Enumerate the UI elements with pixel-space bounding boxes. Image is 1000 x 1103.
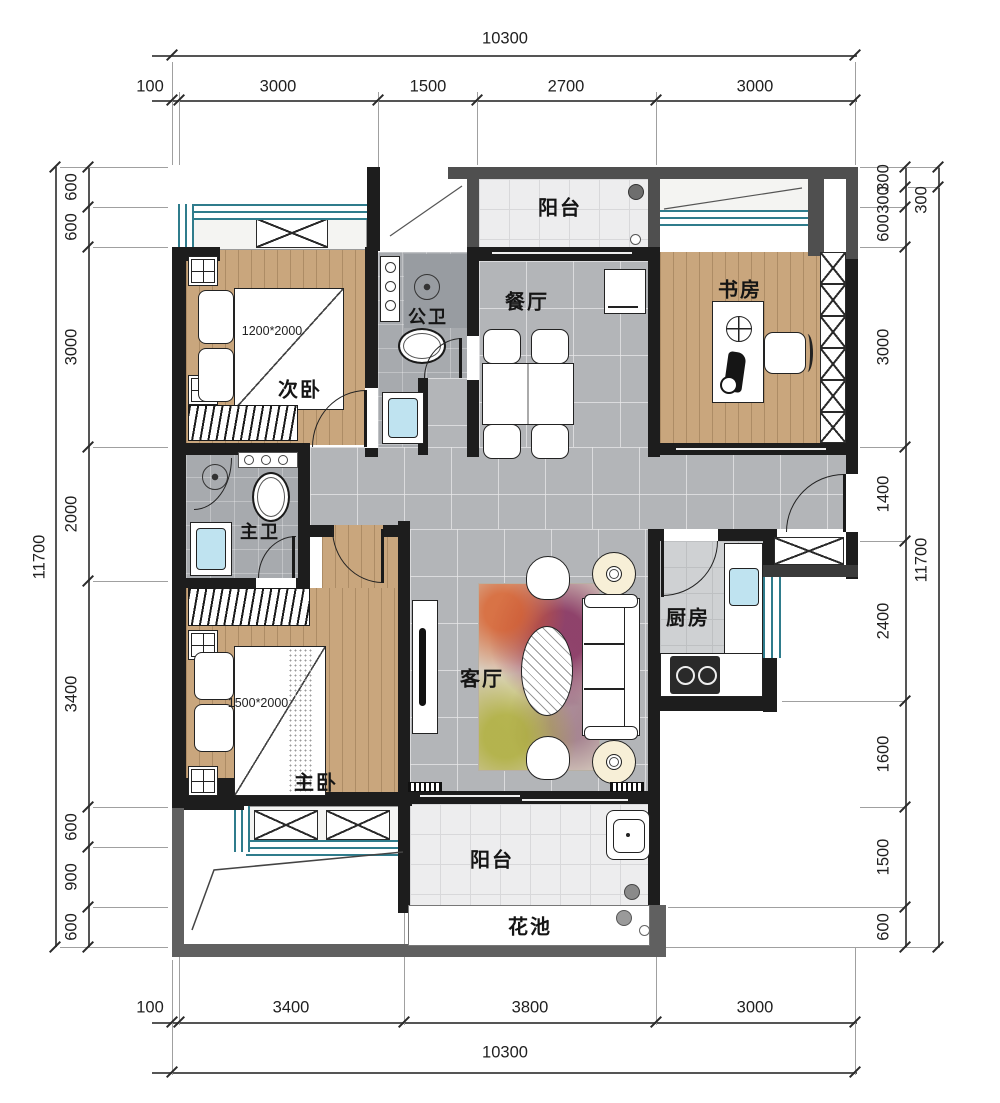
compass-icon [726, 316, 752, 342]
window-bay-bedroom-second [190, 204, 378, 220]
fridge-handle [608, 306, 638, 308]
door-leaf [661, 541, 664, 597]
room-label-bedroom-second: 次卧 [278, 374, 322, 403]
window-bay-study [660, 210, 808, 226]
pillow [194, 704, 234, 752]
drain-icon [628, 184, 644, 200]
dim-line-right-segments [905, 167, 907, 947]
wall [648, 167, 660, 251]
sofa-seam [584, 643, 624, 645]
dim-bottom-total: 10300 [482, 1044, 528, 1063]
bay-seat-study [820, 252, 846, 284]
bay-cabinet-icon [326, 810, 390, 840]
flower-dot [639, 925, 650, 936]
dim-left-seg-0: 600 [63, 173, 82, 201]
room-label-study: 书房 [718, 274, 762, 303]
door-leaf [459, 338, 462, 378]
bay-seat-study [820, 412, 846, 443]
niche-dot [385, 262, 396, 273]
dim-right-outer-300: 300 [913, 186, 932, 214]
dining-chair [531, 329, 569, 364]
wall-top-exterior [448, 167, 858, 179]
shelf-dot [261, 455, 271, 465]
dim-right-seg-2: 600 [875, 214, 894, 242]
extension-line [93, 581, 168, 582]
floor-plan-canvas: 10300 100 3000 1500 2700 3000 100 3400 3… [0, 0, 1000, 1103]
dim-bottom-seg-0: 100 [136, 999, 164, 1018]
extension-line [93, 907, 168, 908]
shelf-dot [244, 455, 254, 465]
coffee-table [521, 626, 573, 716]
extension-line [668, 907, 906, 908]
extension-line [60, 947, 168, 948]
dim-top-seg-3: 2700 [548, 78, 585, 97]
dim-line-bottom-segments [152, 1022, 857, 1024]
extension-line [93, 847, 168, 848]
extension-line [860, 247, 906, 248]
bay-seat-study [820, 380, 846, 412]
extension-line [860, 167, 940, 168]
boundary-wall [650, 905, 666, 957]
bay-seat-study [820, 348, 846, 380]
nightstand [188, 766, 218, 796]
shower-head-icon [414, 274, 440, 300]
niche-dot [385, 300, 396, 311]
sink-master [196, 528, 226, 570]
drain-icon [624, 884, 640, 900]
extension-line [93, 247, 168, 248]
dim-left-total: 11700 [31, 535, 50, 580]
extension-line [172, 960, 173, 1075]
dim-top-seg-4: 3000 [737, 78, 774, 97]
dim-left-seg-3: 2000 [63, 496, 82, 533]
door-leaf [364, 390, 367, 447]
room-label-kitchen: 厨房 [666, 602, 710, 631]
wall [298, 447, 310, 590]
room-label-living: 客厅 [460, 663, 504, 692]
room-label-dining: 餐厅 [505, 286, 549, 315]
dining-chair [483, 329, 521, 364]
desk-equipment-icon [720, 376, 738, 394]
sliding-door-line [522, 799, 628, 801]
sofa-armrest [584, 726, 638, 740]
door-leaf [843, 474, 846, 532]
office-chair-back [802, 334, 813, 372]
extension-line [855, 62, 856, 165]
dim-right-outer-total: 11700 [913, 538, 932, 583]
shower-head-icon [202, 464, 228, 490]
boundary-wall [172, 808, 184, 957]
toilet [252, 472, 290, 522]
dim-top-seg-1: 3000 [260, 78, 297, 97]
dining-chair [483, 424, 521, 459]
wall [172, 247, 186, 792]
dim-right-seg-5: 2400 [875, 603, 894, 640]
lamp-icon [606, 566, 622, 582]
dim-left-seg-7: 600 [63, 913, 82, 941]
extension-line [93, 807, 168, 808]
room-label-flower-bed: 花池 [508, 911, 552, 940]
dim-line-bottom-total [152, 1072, 857, 1074]
door-leaf [292, 536, 295, 578]
window-bay-bedroom-master [246, 840, 406, 856]
flower-dot [616, 910, 632, 926]
office-chair [764, 332, 806, 374]
window-kitchen [763, 576, 781, 658]
armchair [526, 556, 570, 600]
pillow [194, 652, 234, 700]
wall [648, 529, 664, 541]
extension-line [179, 952, 180, 1025]
window-line [676, 448, 826, 450]
extension-line [860, 447, 906, 448]
dim-line-right-total [938, 167, 940, 947]
dim-left-seg-1: 600 [63, 213, 82, 241]
vent-strip [610, 782, 644, 792]
dim-left-seg-2: 3000 [63, 329, 82, 366]
wall [467, 167, 479, 251]
bay-seat-study [820, 316, 846, 348]
bay-seat-study [820, 284, 846, 316]
tv [419, 628, 426, 706]
nightstand [188, 256, 218, 286]
window-bay-bedroom-master-side [234, 804, 250, 852]
kitchen-sink [729, 568, 759, 606]
dim-bottom-seg-3: 3000 [737, 999, 774, 1018]
room-label-bedroom-master: 主卧 [294, 767, 338, 796]
dim-right-seg-3: 3000 [875, 329, 894, 366]
dim-line-left-segments [88, 167, 90, 947]
dim-right-seg-1: 300 [875, 186, 894, 214]
dim-line-top-segments [152, 100, 857, 102]
dim-top-seg-0: 100 [136, 78, 164, 97]
extension-line [93, 207, 168, 208]
dim-line-left-total [55, 167, 57, 947]
dim-right-seg-7: 1500 [875, 839, 894, 876]
bed-size-label-master: 1500*2000 [228, 696, 288, 710]
extension-line [172, 62, 173, 165]
door-leaf [381, 529, 384, 583]
drain-icon [630, 234, 641, 245]
door-opening [256, 578, 296, 588]
wall [846, 259, 858, 474]
room-label-balcony-top: 阳台 [538, 192, 582, 221]
pillow [198, 290, 234, 344]
sofa-seam [584, 688, 624, 690]
dim-line-top-total [152, 55, 857, 57]
extension-line [662, 947, 940, 948]
room-label-bath-public: 公卫 [408, 303, 448, 329]
wall-entry-bottom [763, 565, 858, 577]
dim-top-seg-2: 1500 [410, 78, 447, 97]
vent-strip [408, 782, 442, 792]
extension-line [93, 447, 168, 448]
dim-right-seg-4: 1400 [875, 476, 894, 513]
extension-line [860, 541, 906, 542]
extension-line [60, 167, 168, 168]
dim-bottom-seg-1: 3400 [273, 999, 310, 1018]
burner-icon [676, 666, 695, 685]
lamp-icon [606, 754, 622, 770]
bed-size-label-second: 1200*2000 [242, 324, 302, 338]
dim-right-seg-6: 1600 [875, 736, 894, 773]
wall [808, 168, 824, 256]
extension-line [782, 701, 906, 702]
dim-top-total: 10300 [482, 30, 528, 49]
dim-left-seg-6: 900 [63, 863, 82, 891]
door-opening [467, 336, 479, 380]
floor-corridor [310, 447, 846, 529]
armchair [526, 736, 570, 780]
bay-sill-study [658, 178, 810, 214]
dim-right-seg-8: 600 [875, 913, 894, 941]
wardrobe-second [188, 405, 298, 441]
sofa-back [624, 600, 639, 734]
bay-cabinet-icon [254, 810, 318, 840]
shoe-cabinet [774, 537, 844, 565]
washer-dot [626, 833, 630, 837]
window-bay-bedroom-second-side [178, 204, 194, 252]
extension-line [477, 92, 478, 165]
extension-line [179, 92, 180, 165]
wall [367, 167, 380, 251]
wall [846, 167, 858, 259]
extension-line [656, 92, 657, 165]
wall [398, 521, 410, 913]
wall-kitchen-bottom [648, 697, 777, 711]
pillow [198, 348, 234, 402]
sliding-door-line [420, 795, 520, 797]
burner-icon [698, 666, 717, 685]
wall-living-balcony [403, 791, 650, 804]
wall [310, 525, 334, 537]
sofa-armrest [584, 594, 638, 608]
shelf-dot [278, 455, 288, 465]
room-label-balcony-bottom: 阳台 [470, 844, 514, 873]
room-label-bath-master: 主卫 [240, 518, 280, 544]
dining-table-seam [527, 364, 529, 424]
extension-line [855, 948, 856, 1075]
dim-left-seg-5: 600 [63, 813, 82, 841]
wardrobe-master [188, 588, 310, 626]
dim-bottom-seg-2: 3800 [512, 999, 549, 1018]
wall [648, 247, 660, 457]
extension-line [404, 910, 405, 1025]
extension-line [860, 807, 906, 808]
dining-chair [531, 424, 569, 459]
dim-left-seg-4: 3400 [63, 676, 82, 713]
wall [648, 529, 660, 914]
wall-balcony-dining [467, 247, 660, 261]
niche-dot [385, 281, 396, 292]
bay-cabinet-icon [256, 218, 328, 248]
sink-public [388, 398, 418, 438]
sliding-window-line [492, 252, 632, 254]
